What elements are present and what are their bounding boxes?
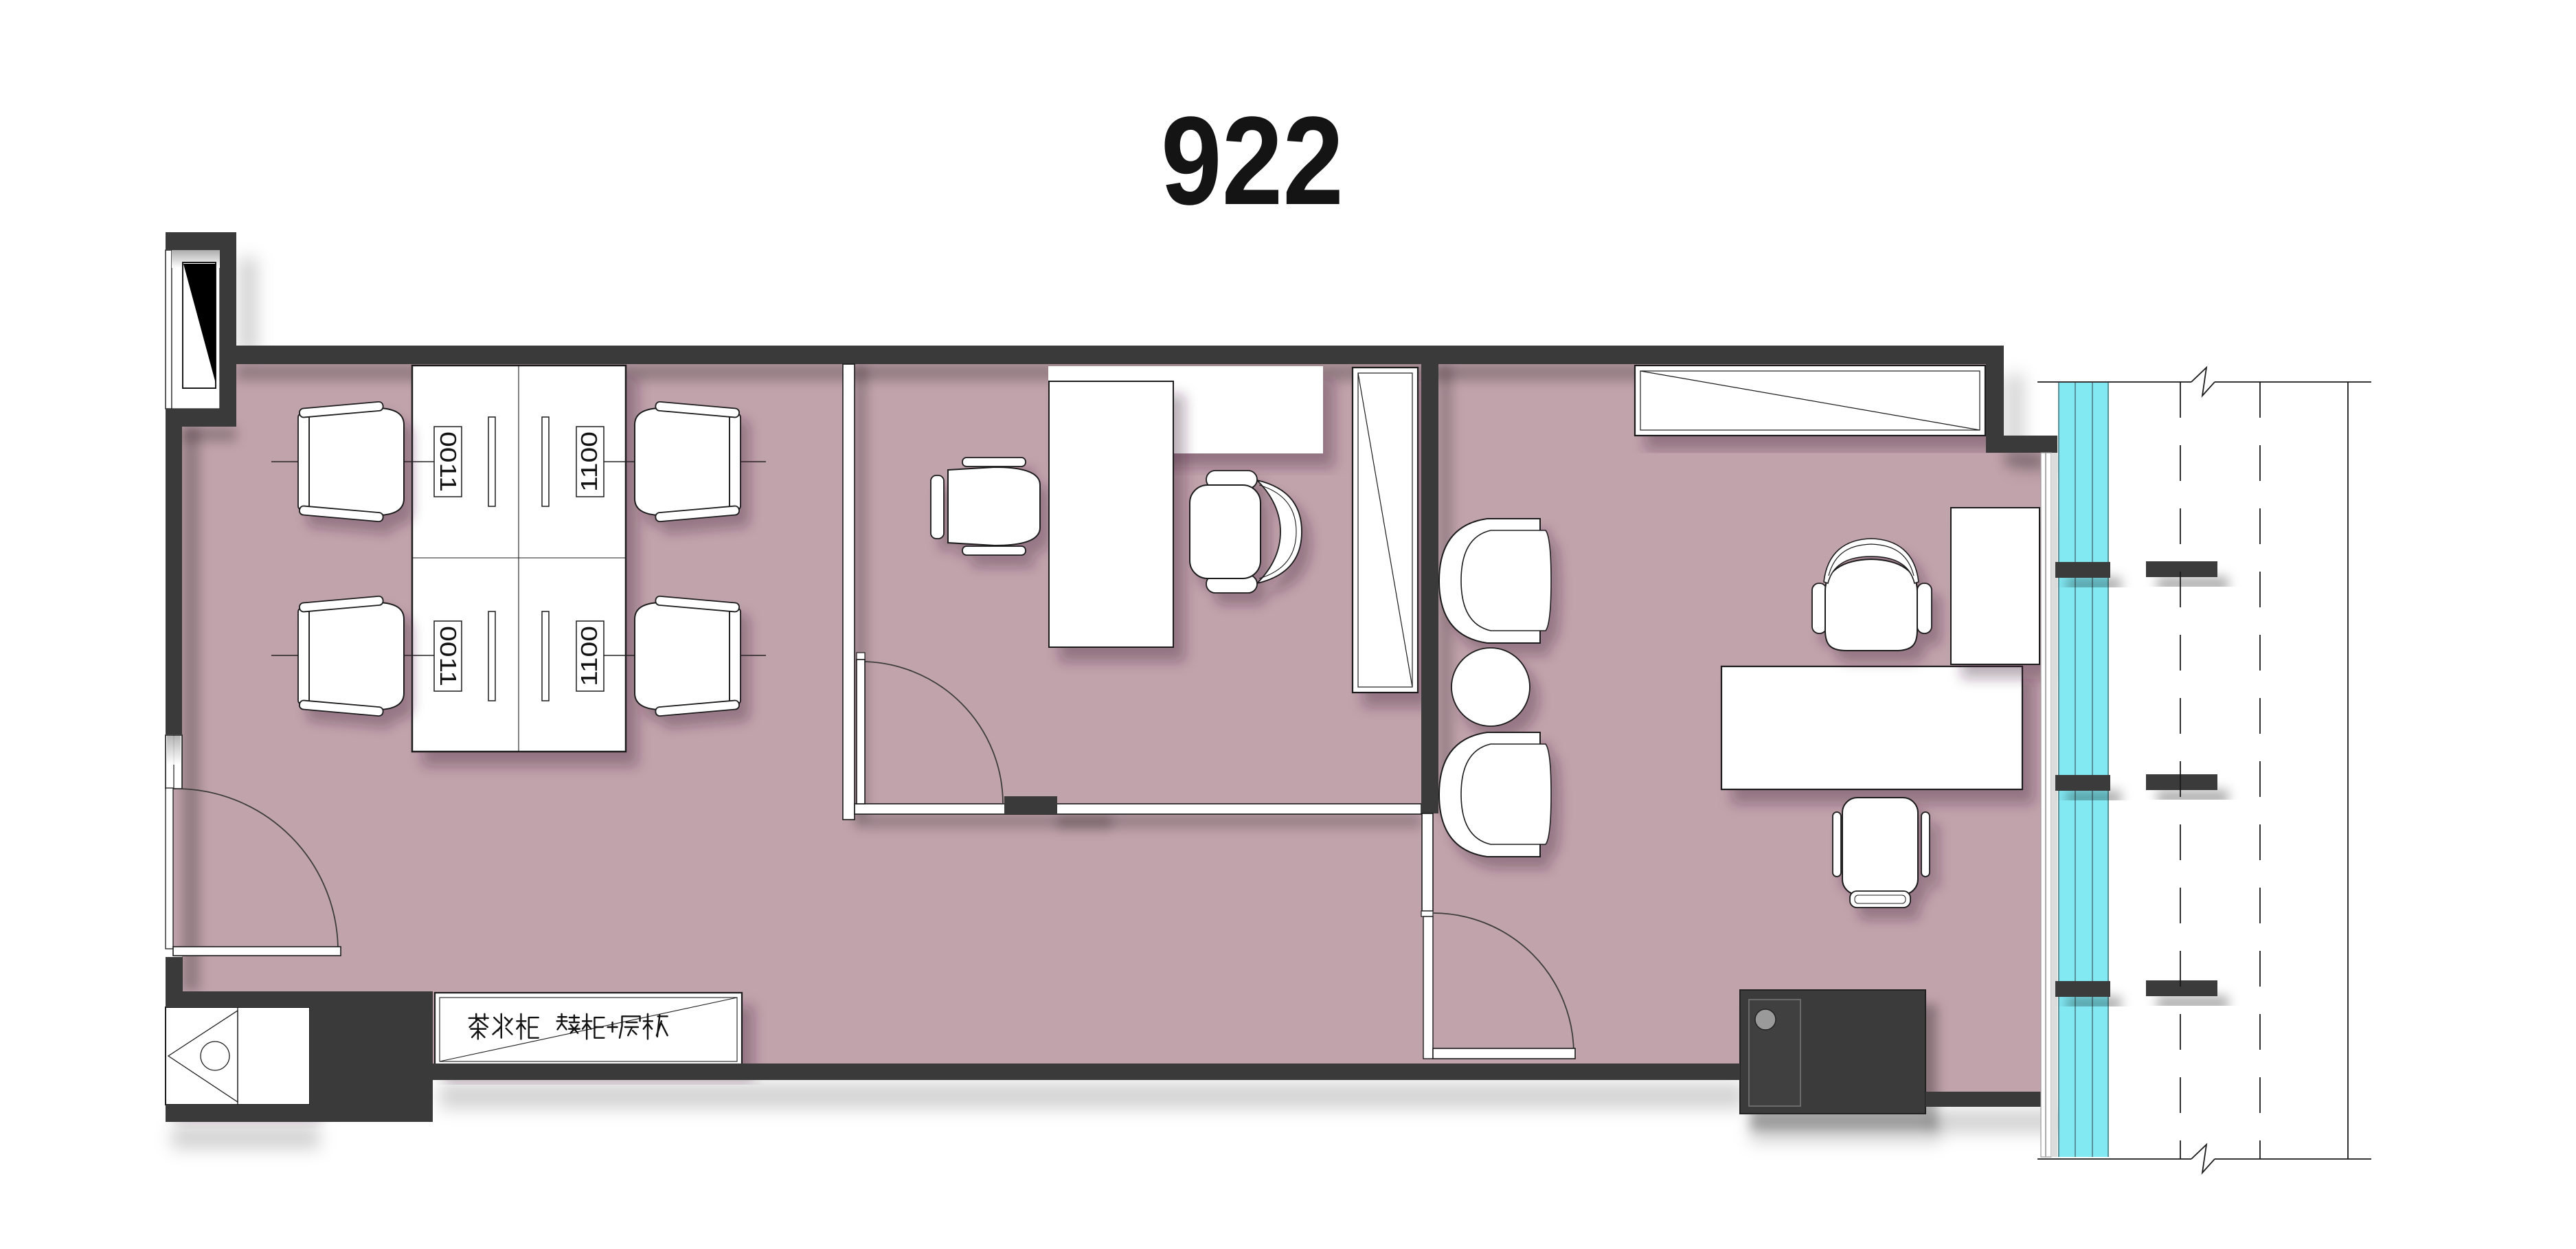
svg-text:922: 922 <box>1161 90 1344 231</box>
svg-text:1100: 1100 <box>576 626 602 686</box>
svg-text:0011: 0011 <box>436 626 461 686</box>
svg-text:0011: 0011 <box>436 431 461 492</box>
svg-text:1100: 1100 <box>576 431 602 492</box>
